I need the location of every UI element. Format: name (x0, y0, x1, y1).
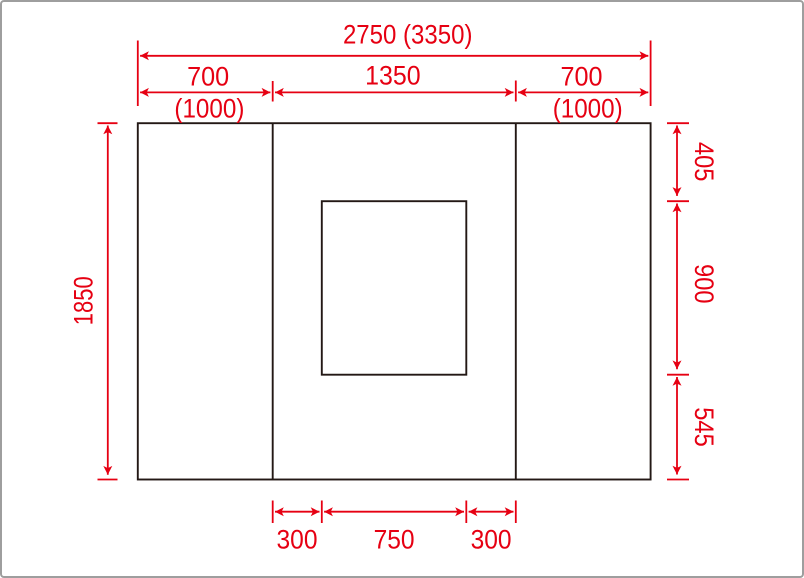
svg-text:405: 405 (689, 142, 719, 182)
svg-text:300: 300 (471, 524, 512, 554)
svg-text:(1000): (1000) (553, 94, 623, 124)
svg-text:2750 (3350): 2750 (3350) (343, 19, 473, 49)
svg-text:700: 700 (187, 61, 229, 91)
svg-text:300: 300 (277, 524, 318, 554)
svg-text:545: 545 (689, 407, 719, 447)
svg-text:(1000): (1000) (174, 94, 244, 124)
svg-text:1350: 1350 (365, 61, 421, 91)
svg-text:700: 700 (561, 61, 603, 91)
svg-text:1850: 1850 (68, 276, 98, 325)
svg-text:750: 750 (374, 524, 415, 554)
svg-text:900: 900 (689, 264, 719, 304)
